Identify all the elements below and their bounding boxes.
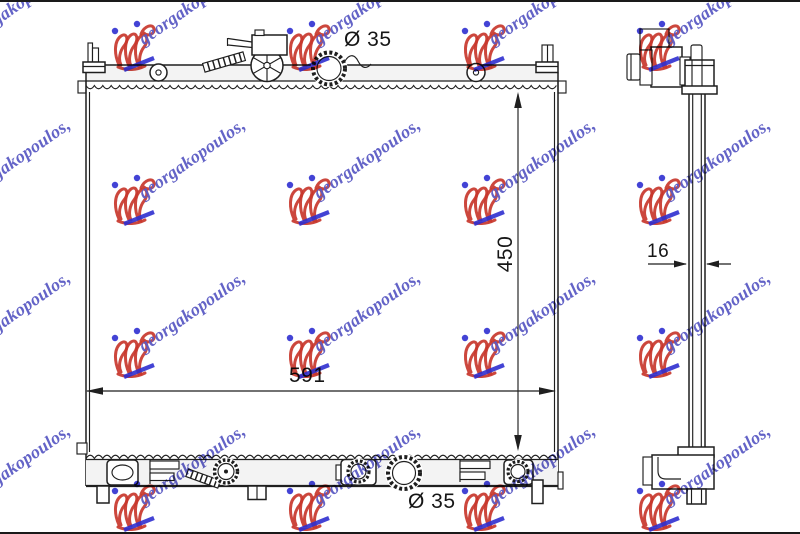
core-width-label: 591 xyxy=(289,365,326,386)
bottom-left-tab xyxy=(77,443,87,454)
core-thickness-label: 16 xyxy=(647,242,669,261)
mounting-pin-bottom-right xyxy=(532,480,543,504)
cap-lever xyxy=(228,38,253,48)
side-view xyxy=(627,29,731,504)
tank-end-cap-left xyxy=(78,81,86,93)
bottom-port-diameter-label: Ø 35 xyxy=(408,491,456,512)
tank-mount-hole-left xyxy=(150,64,167,81)
mounting-pin-bottom-left xyxy=(97,486,109,503)
side-top-assembly xyxy=(627,29,717,94)
bottom-bracket-port-left xyxy=(336,459,376,486)
width-dimension xyxy=(86,387,556,395)
tank-end-cap-right xyxy=(558,81,566,93)
mounting-pin-top-left xyxy=(83,43,105,73)
bottom-right-step xyxy=(558,472,563,489)
mounting-pin-top-right xyxy=(536,45,558,73)
tank-mount-hole-right xyxy=(467,64,485,82)
core-height-label: 450 xyxy=(495,232,517,276)
side-pipe-bottom xyxy=(687,489,706,504)
side-bottom-tab xyxy=(643,457,652,485)
radiator-technical-diagram: Ø 35 450 591 Ø 35 16 georgakopoulos,geor… xyxy=(0,0,800,534)
side-top-base-plate xyxy=(682,86,717,94)
radiator-drawing xyxy=(0,2,800,534)
bottom-bracket-oval xyxy=(107,460,138,485)
core xyxy=(86,73,558,487)
side-bottom-assembly xyxy=(643,447,714,504)
bottom-bracket-port-right xyxy=(504,459,533,485)
side-core xyxy=(689,94,705,450)
front-view xyxy=(77,30,566,504)
top-port-diameter-label: Ø 35 xyxy=(344,29,392,50)
mounting-pin-bottom-center xyxy=(248,486,266,500)
bottom-outlet-port xyxy=(385,454,423,492)
